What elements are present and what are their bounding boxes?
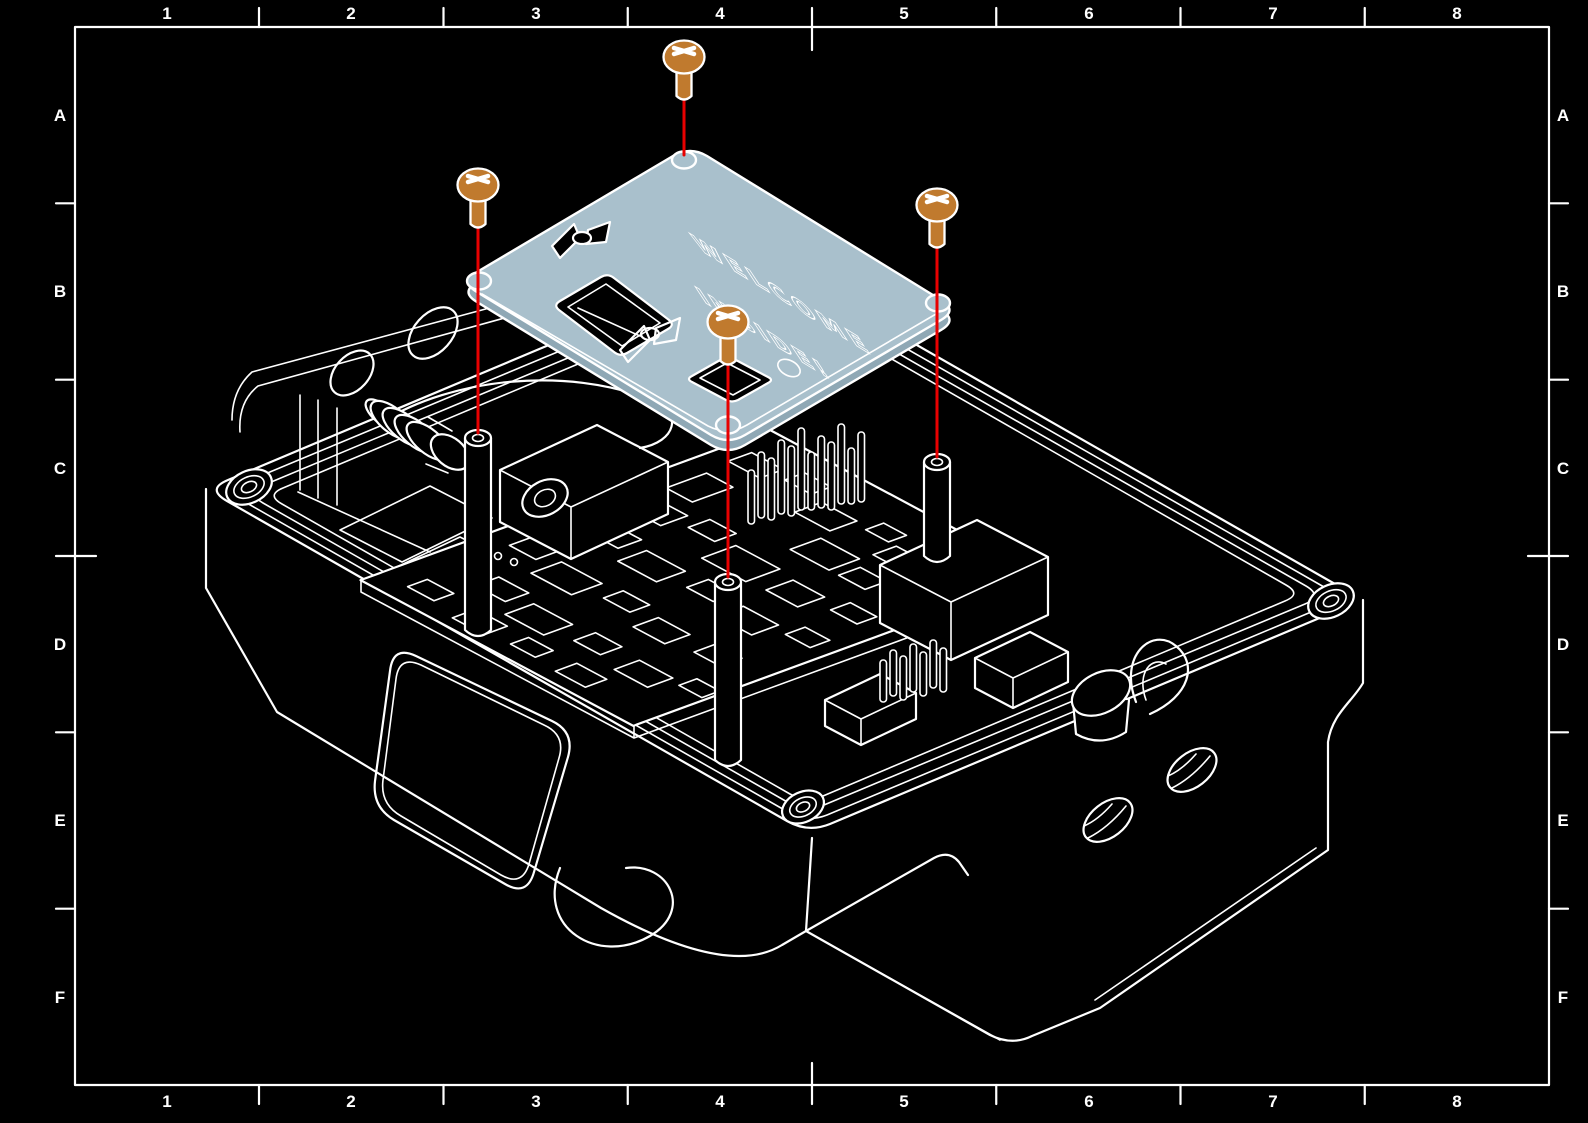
phillips-cross-icon — [927, 196, 947, 202]
grid-col-label: 2 — [346, 4, 355, 23]
grid-col-label: 4 — [715, 1092, 725, 1111]
grid-row-label: B — [1557, 282, 1569, 301]
drawing-sheet: 1 2 3 4 5 6 7 8 1 2 3 4 5 6 7 8 A B C D … — [0, 0, 1588, 1123]
grid-col-label: 5 — [899, 4, 908, 23]
standoff-right — [924, 454, 950, 562]
grid-row-label: F — [1558, 988, 1568, 1007]
grid-col-label: 1 — [162, 4, 171, 23]
grid-row-label: D — [54, 635, 66, 654]
grid-col-label: 1 — [162, 1092, 171, 1111]
standoff-middle — [715, 574, 741, 766]
grid-row-label: F — [55, 988, 65, 1007]
grid-row-label: A — [1557, 106, 1569, 125]
grid-row-label: E — [1557, 811, 1568, 830]
standoff-left — [465, 430, 491, 636]
grid-row-label: A — [54, 106, 66, 125]
grid-col-label: 3 — [531, 4, 540, 23]
grid-col-label: 5 — [899, 1092, 908, 1111]
grid-row-label: B — [54, 282, 66, 301]
grid-col-label: 7 — [1268, 4, 1277, 23]
grid-row-label: D — [1557, 635, 1569, 654]
grid-row-label: C — [1557, 459, 1569, 478]
technical-drawing: 1 2 3 4 5 6 7 8 1 2 3 4 5 6 7 8 A B C D … — [0, 0, 1588, 1123]
grid-row-label: E — [54, 811, 65, 830]
grid-col-label: 3 — [531, 1092, 540, 1111]
grid-col-label: 8 — [1452, 1092, 1461, 1111]
phillips-cross-icon — [674, 48, 694, 54]
grid-col-label: 8 — [1452, 4, 1461, 23]
grid-col-label: 6 — [1084, 4, 1093, 23]
phillips-cross-icon — [718, 313, 738, 319]
phillips-cross-icon — [468, 176, 488, 182]
grid-col-label: 2 — [346, 1092, 355, 1111]
grid-col-label: 4 — [715, 4, 725, 23]
grid-col-label: 7 — [1268, 1092, 1277, 1111]
grid-row-label: C — [54, 459, 66, 478]
grid-col-label: 6 — [1084, 1092, 1093, 1111]
